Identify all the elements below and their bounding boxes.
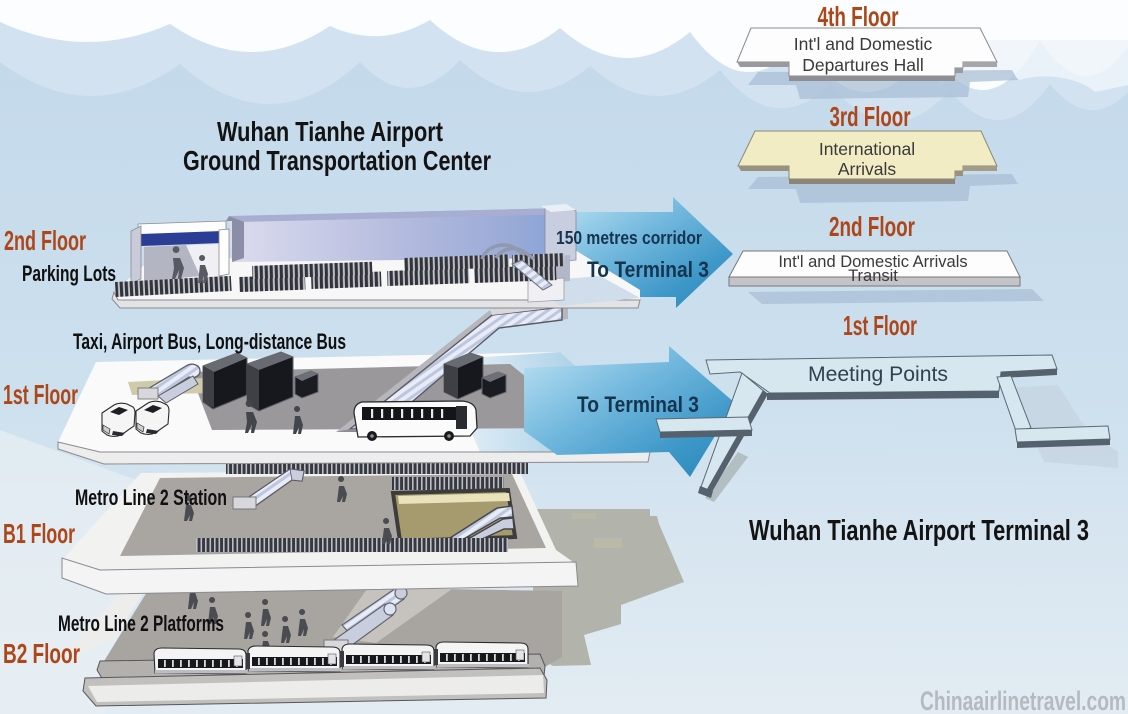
svg-text:Parking Lots: Parking Lots xyxy=(22,261,116,286)
svg-text:Arrivals: Arrivals xyxy=(838,159,897,179)
svg-text:Wuhan Tianhe Airport Terminal: Wuhan Tianhe Airport Terminal 3 xyxy=(749,515,1089,547)
svg-text:2nd Floor: 2nd Floor xyxy=(829,211,915,242)
svg-text:Int'l and Domestic: Int'l and Domestic xyxy=(794,34,933,54)
svg-text:To Terminal 3: To Terminal 3 xyxy=(577,392,699,417)
svg-text:Wuhan Tianhe Airport: Wuhan Tianhe Airport xyxy=(217,116,443,147)
svg-text:Ground Transportation Center: Ground Transportation Center xyxy=(183,145,491,176)
svg-text:Metro Line 2 Platforms: Metro Line 2 Platforms xyxy=(58,611,224,636)
svg-text:2nd Floor: 2nd Floor xyxy=(4,225,86,256)
svg-text:Meeting Points: Meeting Points xyxy=(808,363,948,386)
svg-text:Metro Line 2 Station: Metro Line 2 Station xyxy=(75,485,227,510)
svg-text:Transit: Transit xyxy=(848,267,898,285)
svg-text:B1 Floor: B1 Floor xyxy=(3,518,75,549)
svg-text:1st Floor: 1st Floor xyxy=(843,310,917,341)
svg-text:Chinaairlinetravel.com: Chinaairlinetravel.com xyxy=(920,686,1126,714)
svg-text:4th Floor: 4th Floor xyxy=(818,1,899,32)
svg-text:Departures Hall: Departures Hall xyxy=(802,55,924,75)
svg-text:3rd Floor: 3rd Floor xyxy=(830,101,911,132)
svg-text:150 metres corridor: 150 metres corridor xyxy=(556,228,702,248)
svg-text:B2 Floor: B2 Floor xyxy=(3,638,80,669)
svg-text:Taxi, Airport Bus, Long-distan: Taxi, Airport Bus, Long-distance Bus xyxy=(73,329,346,354)
svg-text:1st Floor: 1st Floor xyxy=(3,379,78,410)
svg-text:To Terminal 3: To Terminal 3 xyxy=(587,257,709,282)
svg-text:International: International xyxy=(819,139,915,159)
